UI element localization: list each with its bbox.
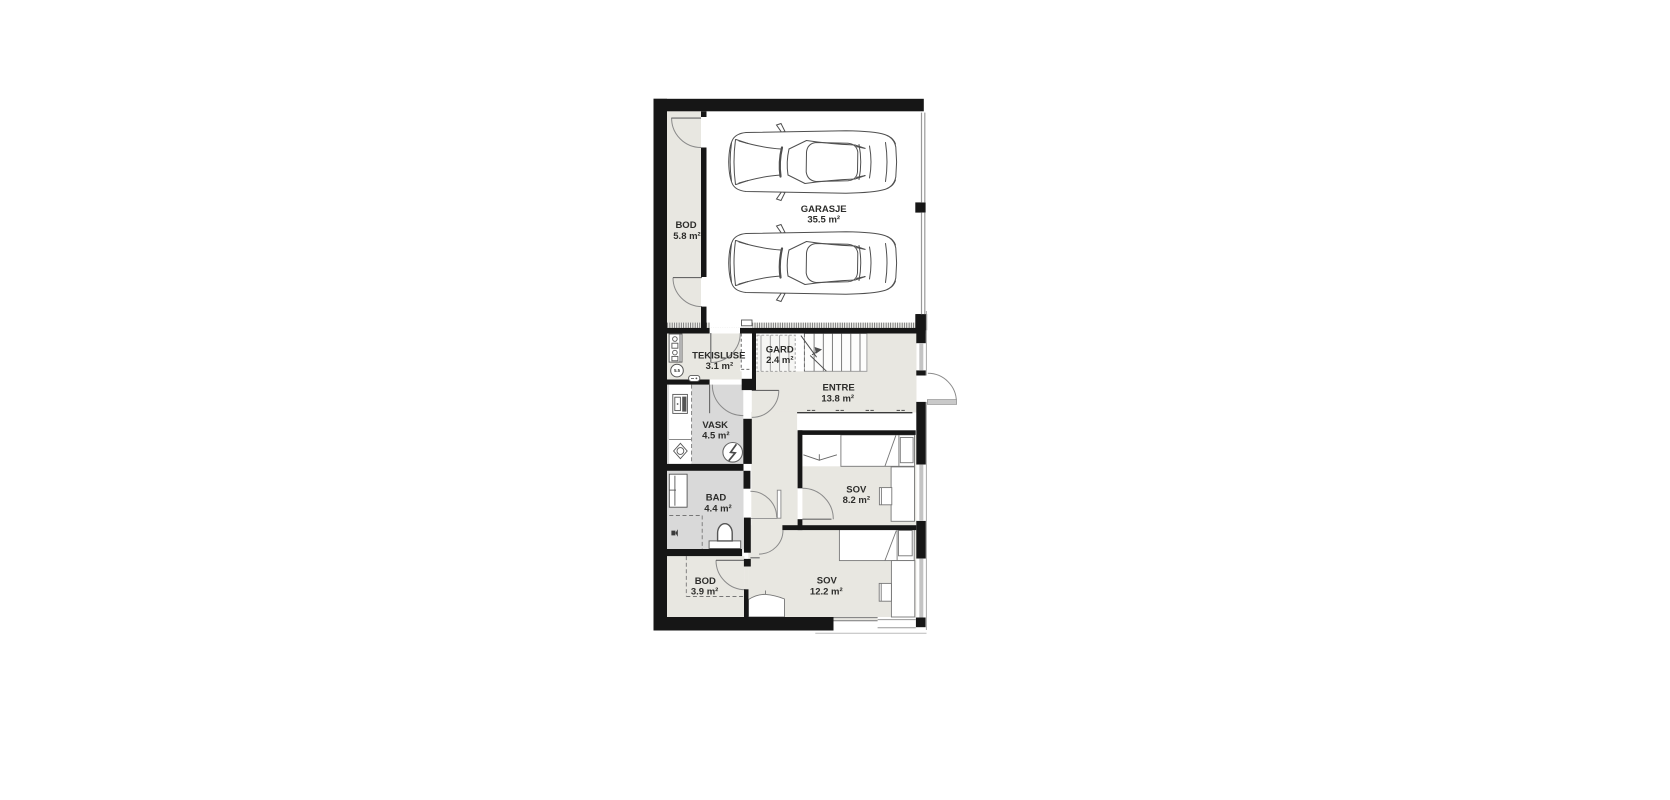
svg-text:4.5 m²: 4.5 m² [702, 431, 729, 442]
svg-text:13.8 m²: 13.8 m² [821, 393, 854, 404]
svg-text:5.5: 5.5 [674, 368, 680, 373]
svg-text:BOD: BOD [675, 220, 696, 231]
svg-text:TEKISLUSE: TEKISLUSE [692, 350, 745, 361]
svg-text:VASK: VASK [702, 420, 728, 431]
svg-text:5.8 m²: 5.8 m² [673, 231, 700, 242]
svg-text:3.9 m²: 3.9 m² [691, 587, 718, 598]
svg-text:8.2 m²: 8.2 m² [843, 495, 870, 506]
svg-text:SOV: SOV [846, 484, 867, 495]
svg-text:2.4 m²: 2.4 m² [766, 355, 793, 366]
svg-text:BOD: BOD [695, 576, 716, 587]
svg-text:35.5 m²: 35.5 m² [807, 215, 840, 226]
svg-text:ENTRE: ENTRE [822, 383, 854, 394]
svg-text:4.4 m²: 4.4 m² [704, 503, 731, 514]
svg-text:GARASJE: GARASJE [801, 204, 847, 215]
svg-text:SOV: SOV [817, 576, 838, 587]
svg-text:3.1 m²: 3.1 m² [706, 361, 733, 372]
svg-text:BAD: BAD [706, 493, 727, 504]
svg-text:12.2 m²: 12.2 m² [810, 586, 843, 597]
svg-text:GARD: GARD [766, 345, 794, 356]
